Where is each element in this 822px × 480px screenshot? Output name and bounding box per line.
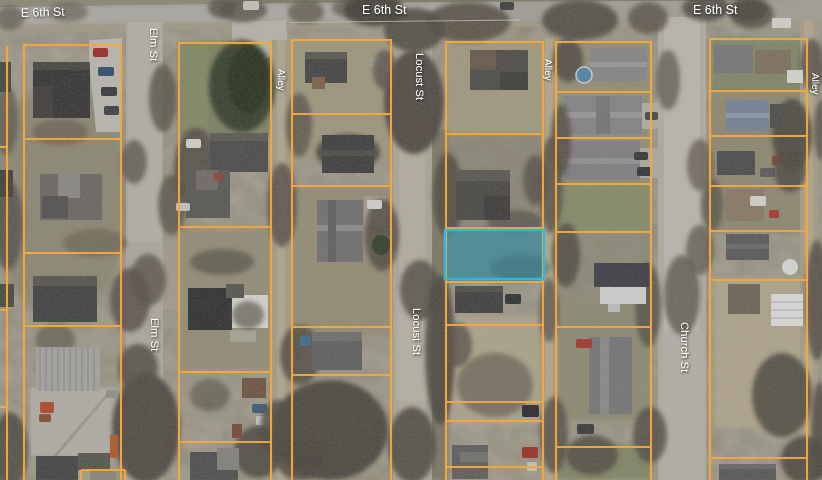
svg-text:Locust St: Locust St [410, 308, 422, 356]
svg-text:Alley: Alley [809, 73, 820, 95]
svg-text:Elm St: Elm St [147, 28, 159, 62]
svg-text:E 6th St: E 6th St [362, 3, 407, 17]
svg-text:Alley: Alley [275, 69, 286, 91]
svg-text:E 6th St: E 6th St [21, 5, 66, 20]
svg-text:Church St: Church St [678, 322, 690, 373]
svg-text:Alley: Alley [542, 59, 553, 81]
svg-text:Locust St: Locust St [413, 53, 425, 101]
svg-text:Elm St: Elm St [148, 318, 160, 352]
svg-text:E 6th St: E 6th St [693, 3, 738, 17]
